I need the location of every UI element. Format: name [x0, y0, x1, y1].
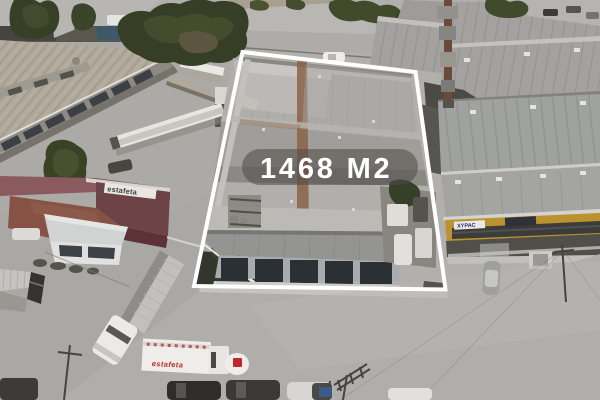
svg-text:estafeta: estafeta — [152, 359, 184, 370]
svg-text:1468 M2: 1468 M2 — [260, 153, 392, 185]
svg-text:XYPAC: XYPAC — [457, 223, 476, 230]
